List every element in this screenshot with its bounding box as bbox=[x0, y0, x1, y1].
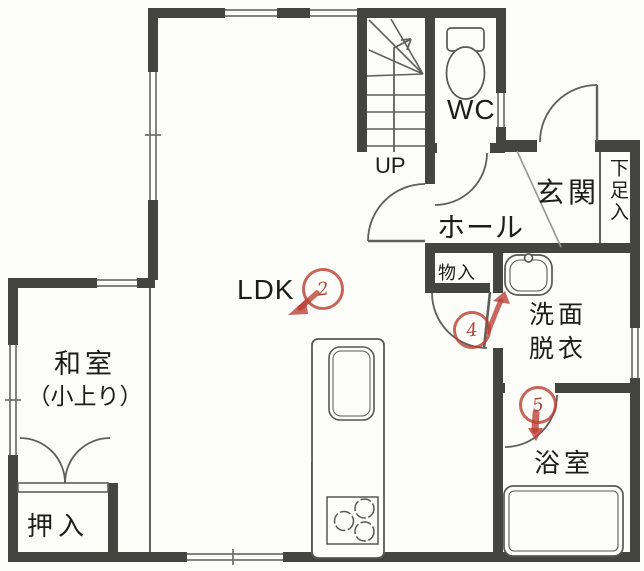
circled-number-value: 2 bbox=[316, 278, 330, 300]
closet-door-frame bbox=[18, 483, 108, 492]
circled-number-value: 5 bbox=[531, 394, 545, 416]
washbasin-icon bbox=[505, 254, 552, 295]
room-label-bath: 浴室 bbox=[534, 443, 594, 480]
room-label-monoire: 物入 bbox=[438, 259, 476, 285]
room-label-shoebox: 下足入 bbox=[604, 158, 631, 224]
senmen-line: 洗面 bbox=[529, 299, 587, 333]
floor-plan: LDK 和室 （小上り） 押入 物入 ホール 玄関 下足入 WC UP 洗面 脱… bbox=[0, 0, 644, 571]
entrance-door-arc bbox=[540, 85, 597, 142]
kitchen-counter-icon bbox=[312, 339, 384, 558]
room-label-ldk: LDK bbox=[237, 274, 294, 306]
datsui-line: 脱衣 bbox=[529, 333, 587, 367]
toilet-icon bbox=[447, 28, 485, 99]
room-label-genkan: 玄関 bbox=[536, 171, 600, 211]
red-arrow-bath-head bbox=[528, 428, 543, 441]
bathtub-icon bbox=[504, 486, 623, 556]
circled-number-value: 4 bbox=[465, 319, 479, 341]
stairs-up-label: UP bbox=[375, 153, 406, 179]
washitsu-name: 和室 bbox=[18, 348, 152, 382]
hall-door-arc bbox=[368, 184, 425, 241]
closet-door-arc-left bbox=[20, 438, 65, 483]
room-label-senmen-datsui: 洗面 脱衣 bbox=[529, 299, 587, 366]
room-label-hall: ホール bbox=[437, 206, 524, 246]
washitsu-note: （小上り） bbox=[18, 382, 152, 411]
room-label-oshiire: 押入 bbox=[27, 506, 89, 543]
staircase-icon bbox=[367, 19, 425, 152]
room-label-wc: WC bbox=[447, 94, 496, 126]
wc-door-arc bbox=[435, 153, 487, 205]
stove-icon bbox=[327, 497, 378, 544]
room-label-washitsu: 和室 （小上り） bbox=[18, 348, 152, 411]
kitchen-sink-icon bbox=[329, 347, 374, 420]
closet-door-arc-right bbox=[65, 438, 110, 483]
